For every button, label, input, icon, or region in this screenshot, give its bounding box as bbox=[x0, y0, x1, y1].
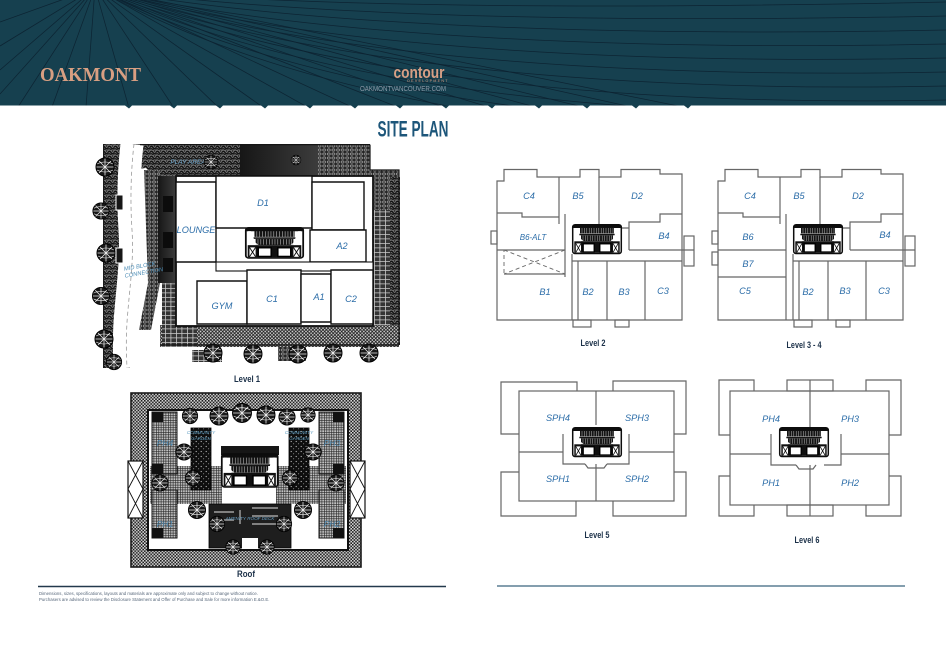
svg-text:B4: B4 bbox=[879, 230, 890, 240]
svg-text:Purchasers are advised to revi: Purchasers are advised to review the Dis… bbox=[39, 597, 269, 602]
svg-text:PH2: PH2 bbox=[841, 478, 859, 488]
svg-text:B6-ALT: B6-ALT bbox=[520, 233, 548, 242]
svg-text:GARDEN: GARDEN bbox=[191, 436, 211, 441]
svg-text:B5: B5 bbox=[793, 191, 805, 201]
svg-text:PH3: PH3 bbox=[841, 414, 860, 424]
svg-text:Level 2: Level 2 bbox=[581, 338, 606, 349]
svg-text:C3: C3 bbox=[657, 286, 670, 296]
svg-text:OAKMONTVANCOUVER.COM: OAKMONTVANCOUVER.COM bbox=[360, 86, 446, 93]
svg-text:OAKMONT: OAKMONT bbox=[40, 64, 142, 86]
svg-text:SITE PLAN: SITE PLAN bbox=[378, 117, 449, 142]
svg-text:C4: C4 bbox=[744, 191, 756, 201]
svg-text:COMMUNITY: COMMUNITY bbox=[187, 430, 216, 435]
svg-text:SPH1: SPH1 bbox=[546, 474, 570, 484]
svg-text:B2: B2 bbox=[802, 287, 813, 297]
svg-text:C4: C4 bbox=[523, 191, 535, 201]
svg-text:B3: B3 bbox=[839, 286, 851, 296]
svg-text:SPH3: SPH3 bbox=[625, 413, 650, 423]
svg-text:PH1: PH1 bbox=[762, 478, 780, 488]
svg-text:GARDEN: GARDEN bbox=[289, 436, 309, 441]
svg-text:C2: C2 bbox=[345, 294, 357, 304]
svg-text:GYM: GYM bbox=[212, 301, 233, 311]
svg-text:B3: B3 bbox=[618, 287, 630, 297]
svg-text:SPH2: SPH2 bbox=[625, 474, 649, 484]
svg-text:LOUNGE: LOUNGE bbox=[177, 225, 217, 235]
svg-text:B2: B2 bbox=[582, 287, 593, 297]
svg-text:A1: A1 bbox=[312, 292, 324, 302]
svg-text:PH4: PH4 bbox=[157, 438, 174, 448]
svg-text:D2: D2 bbox=[631, 191, 643, 201]
svg-text:C3: C3 bbox=[878, 286, 891, 296]
svg-text:SPH4: SPH4 bbox=[546, 413, 570, 423]
svg-text:DEVELOPMENT: DEVELOPMENT bbox=[407, 79, 448, 83]
svg-text:D2: D2 bbox=[852, 191, 864, 201]
svg-text:COMMUNITY: COMMUNITY bbox=[285, 430, 314, 435]
svg-text:Level 6: Level 6 bbox=[795, 535, 820, 546]
svg-text:AMENITY ROOF DECK: AMENITY ROOF DECK bbox=[225, 516, 276, 521]
svg-text:C5: C5 bbox=[739, 286, 752, 296]
svg-text:PLAY AREA: PLAY AREA bbox=[170, 159, 205, 166]
svg-text:B4: B4 bbox=[658, 231, 669, 241]
svg-text:A2: A2 bbox=[335, 241, 347, 251]
svg-text:Level 5: Level 5 bbox=[585, 530, 611, 541]
svg-text:C1: C1 bbox=[266, 294, 278, 304]
svg-text:PH4: PH4 bbox=[762, 414, 780, 424]
svg-text:Dimensions, sizes, specificati: Dimensions, sizes, specifications, layou… bbox=[39, 591, 258, 596]
svg-text:Level 3 - 4: Level 3 - 4 bbox=[787, 340, 823, 351]
svg-text:PH2: PH2 bbox=[324, 519, 341, 529]
svg-text:PH3: PH3 bbox=[324, 438, 341, 448]
svg-text:D1: D1 bbox=[257, 198, 269, 208]
svg-text:B1: B1 bbox=[539, 287, 550, 297]
svg-text:Roof: Roof bbox=[237, 569, 256, 580]
svg-text:PH1: PH1 bbox=[157, 519, 174, 529]
svg-text:B7: B7 bbox=[742, 259, 754, 269]
svg-text:Level 1: Level 1 bbox=[234, 374, 261, 385]
svg-text:B5: B5 bbox=[572, 191, 584, 201]
svg-text:B6: B6 bbox=[742, 232, 754, 242]
